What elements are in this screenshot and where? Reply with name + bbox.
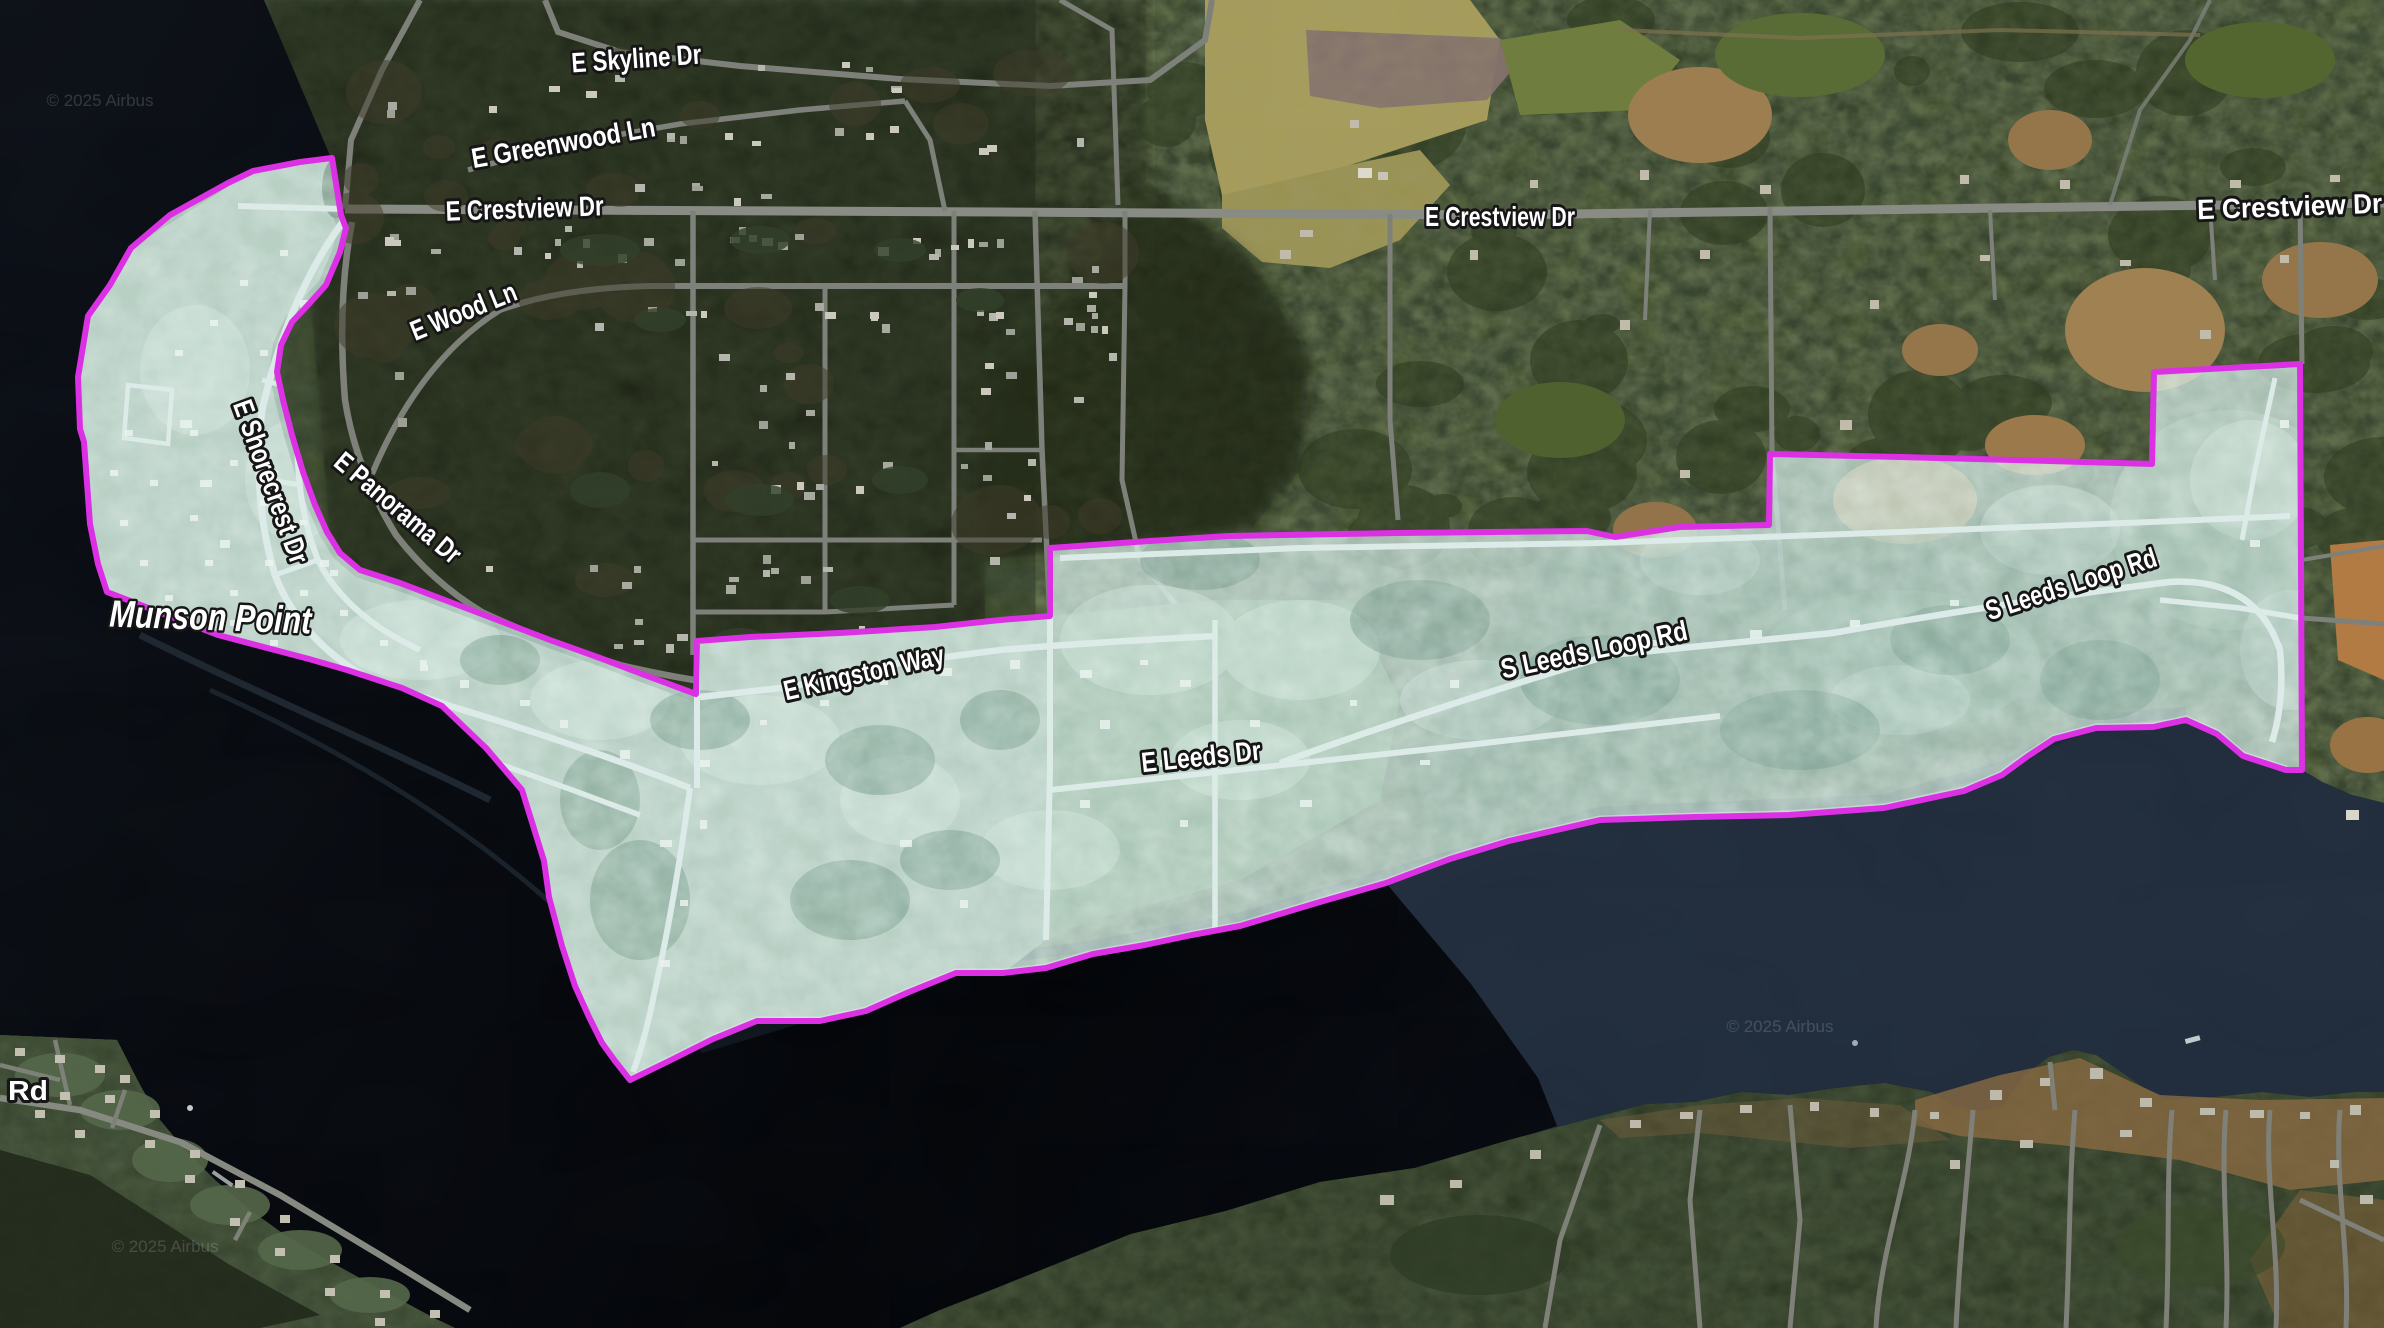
svg-text:E Crestview Dr: E Crestview Dr bbox=[1425, 201, 1575, 232]
svg-text:© 2025 Airbus: © 2025 Airbus bbox=[111, 1237, 218, 1256]
svg-text:© 2025 Airbus: © 2025 Airbus bbox=[46, 91, 153, 110]
svg-text:E Crestview Dr: E Crestview Dr bbox=[2197, 188, 2383, 225]
svg-text:Munson Point: Munson Point bbox=[109, 593, 313, 642]
svg-text:E Crestview Dr: E Crestview Dr bbox=[445, 190, 604, 226]
svg-text:Rd: Rd bbox=[8, 1075, 48, 1106]
svg-text:© 2025 Airbus: © 2025 Airbus bbox=[1726, 1017, 1833, 1036]
